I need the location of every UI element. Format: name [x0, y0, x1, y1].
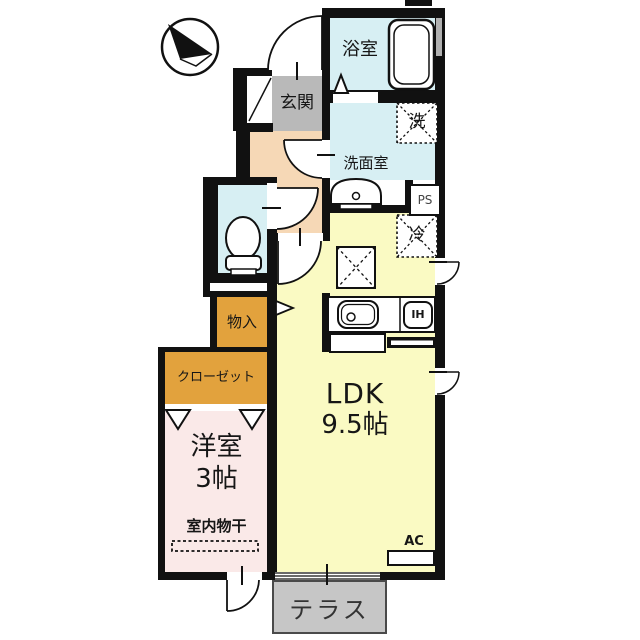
pipe-space: PS — [409, 184, 441, 216]
kitchen-hatch — [337, 247, 375, 288]
closet-door-marker — [166, 410, 190, 429]
entrance-label: 玄関 — [272, 92, 322, 116]
shoe-cabinet-diagonal — [249, 78, 271, 121]
ldk-size: 9.5帖 — [295, 410, 415, 442]
terrace-sliding-window — [275, 564, 380, 585]
washroom-label: 洗面室 — [328, 153, 404, 175]
entrance-door-swing — [268, 16, 322, 70]
sink-drain — [347, 313, 355, 321]
indoor-drying-label: 室内物干 — [165, 517, 268, 537]
bath-window — [436, 18, 442, 56]
fridge-label: 冷 — [397, 220, 437, 252]
ldk-door-swing — [278, 241, 321, 284]
closet-door-marker — [240, 410, 264, 429]
bath-door-marker — [334, 75, 348, 93]
toilet — [226, 217, 261, 275]
casement-window — [429, 262, 459, 284]
washbasin — [331, 179, 381, 209]
western-room-label: 洋室 — [165, 432, 268, 464]
western-room-size: 3帖 — [165, 464, 268, 496]
washer-label: 洗 — [397, 107, 437, 139]
counter-cabinet — [330, 334, 385, 352]
pipe-space-label: PS — [418, 193, 433, 207]
storage-door-marker — [276, 301, 293, 315]
washroom-door-swing — [284, 140, 322, 178]
floorplan: テラス — [0, 0, 640, 640]
ac-unit — [388, 551, 434, 565]
ldk-label: LDK — [295, 378, 415, 410]
closet-label: クローゼット — [166, 366, 266, 390]
bathroom-label: 浴室 — [330, 37, 390, 63]
casement-window — [429, 372, 459, 394]
ih-label: IH — [404, 302, 432, 328]
toilet-door-swing — [277, 188, 318, 229]
bathtub — [389, 20, 434, 89]
north-arrow-icon — [162, 19, 218, 75]
drying-rail — [172, 541, 258, 551]
ac-label: AC — [396, 533, 432, 550]
storage-label: 物入 — [217, 312, 267, 334]
